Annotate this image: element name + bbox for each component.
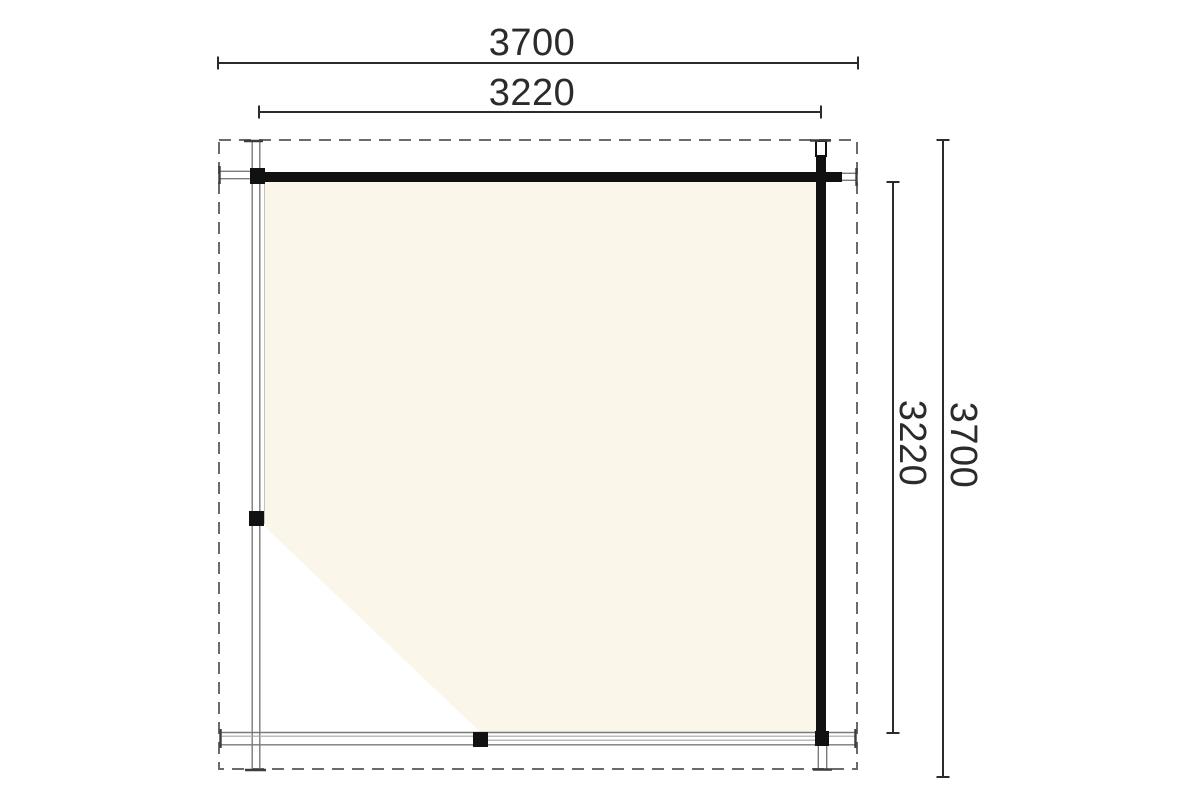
dim-label-top-inner: 3220	[432, 74, 632, 112]
post-top-left	[250, 168, 265, 184]
floor-plan-canvas	[0, 0, 1200, 800]
top-left-stub-beam	[219, 166, 251, 184]
post-bottom-middle	[473, 732, 488, 747]
dim-label-top-outer: 3700	[432, 24, 632, 62]
top-right-post-stub	[810, 141, 831, 157]
post-left-middle	[249, 511, 264, 526]
post-bottom-right	[815, 731, 829, 746]
dim-label-right-outer: 3700	[944, 402, 982, 489]
top-right-stub-beam	[842, 168, 857, 186]
bottom-right-stub-beam	[813, 746, 832, 770]
left-beam	[244, 141, 266, 770]
right-wall	[816, 155, 826, 746]
floor-area	[265, 182, 816, 732]
floor-plan-page: 3700 3220 3220 3700	[0, 0, 1200, 800]
bottom-beam	[220, 729, 856, 748]
top-wall	[251, 172, 842, 182]
dim-label-right-inner: 3220	[893, 400, 931, 487]
